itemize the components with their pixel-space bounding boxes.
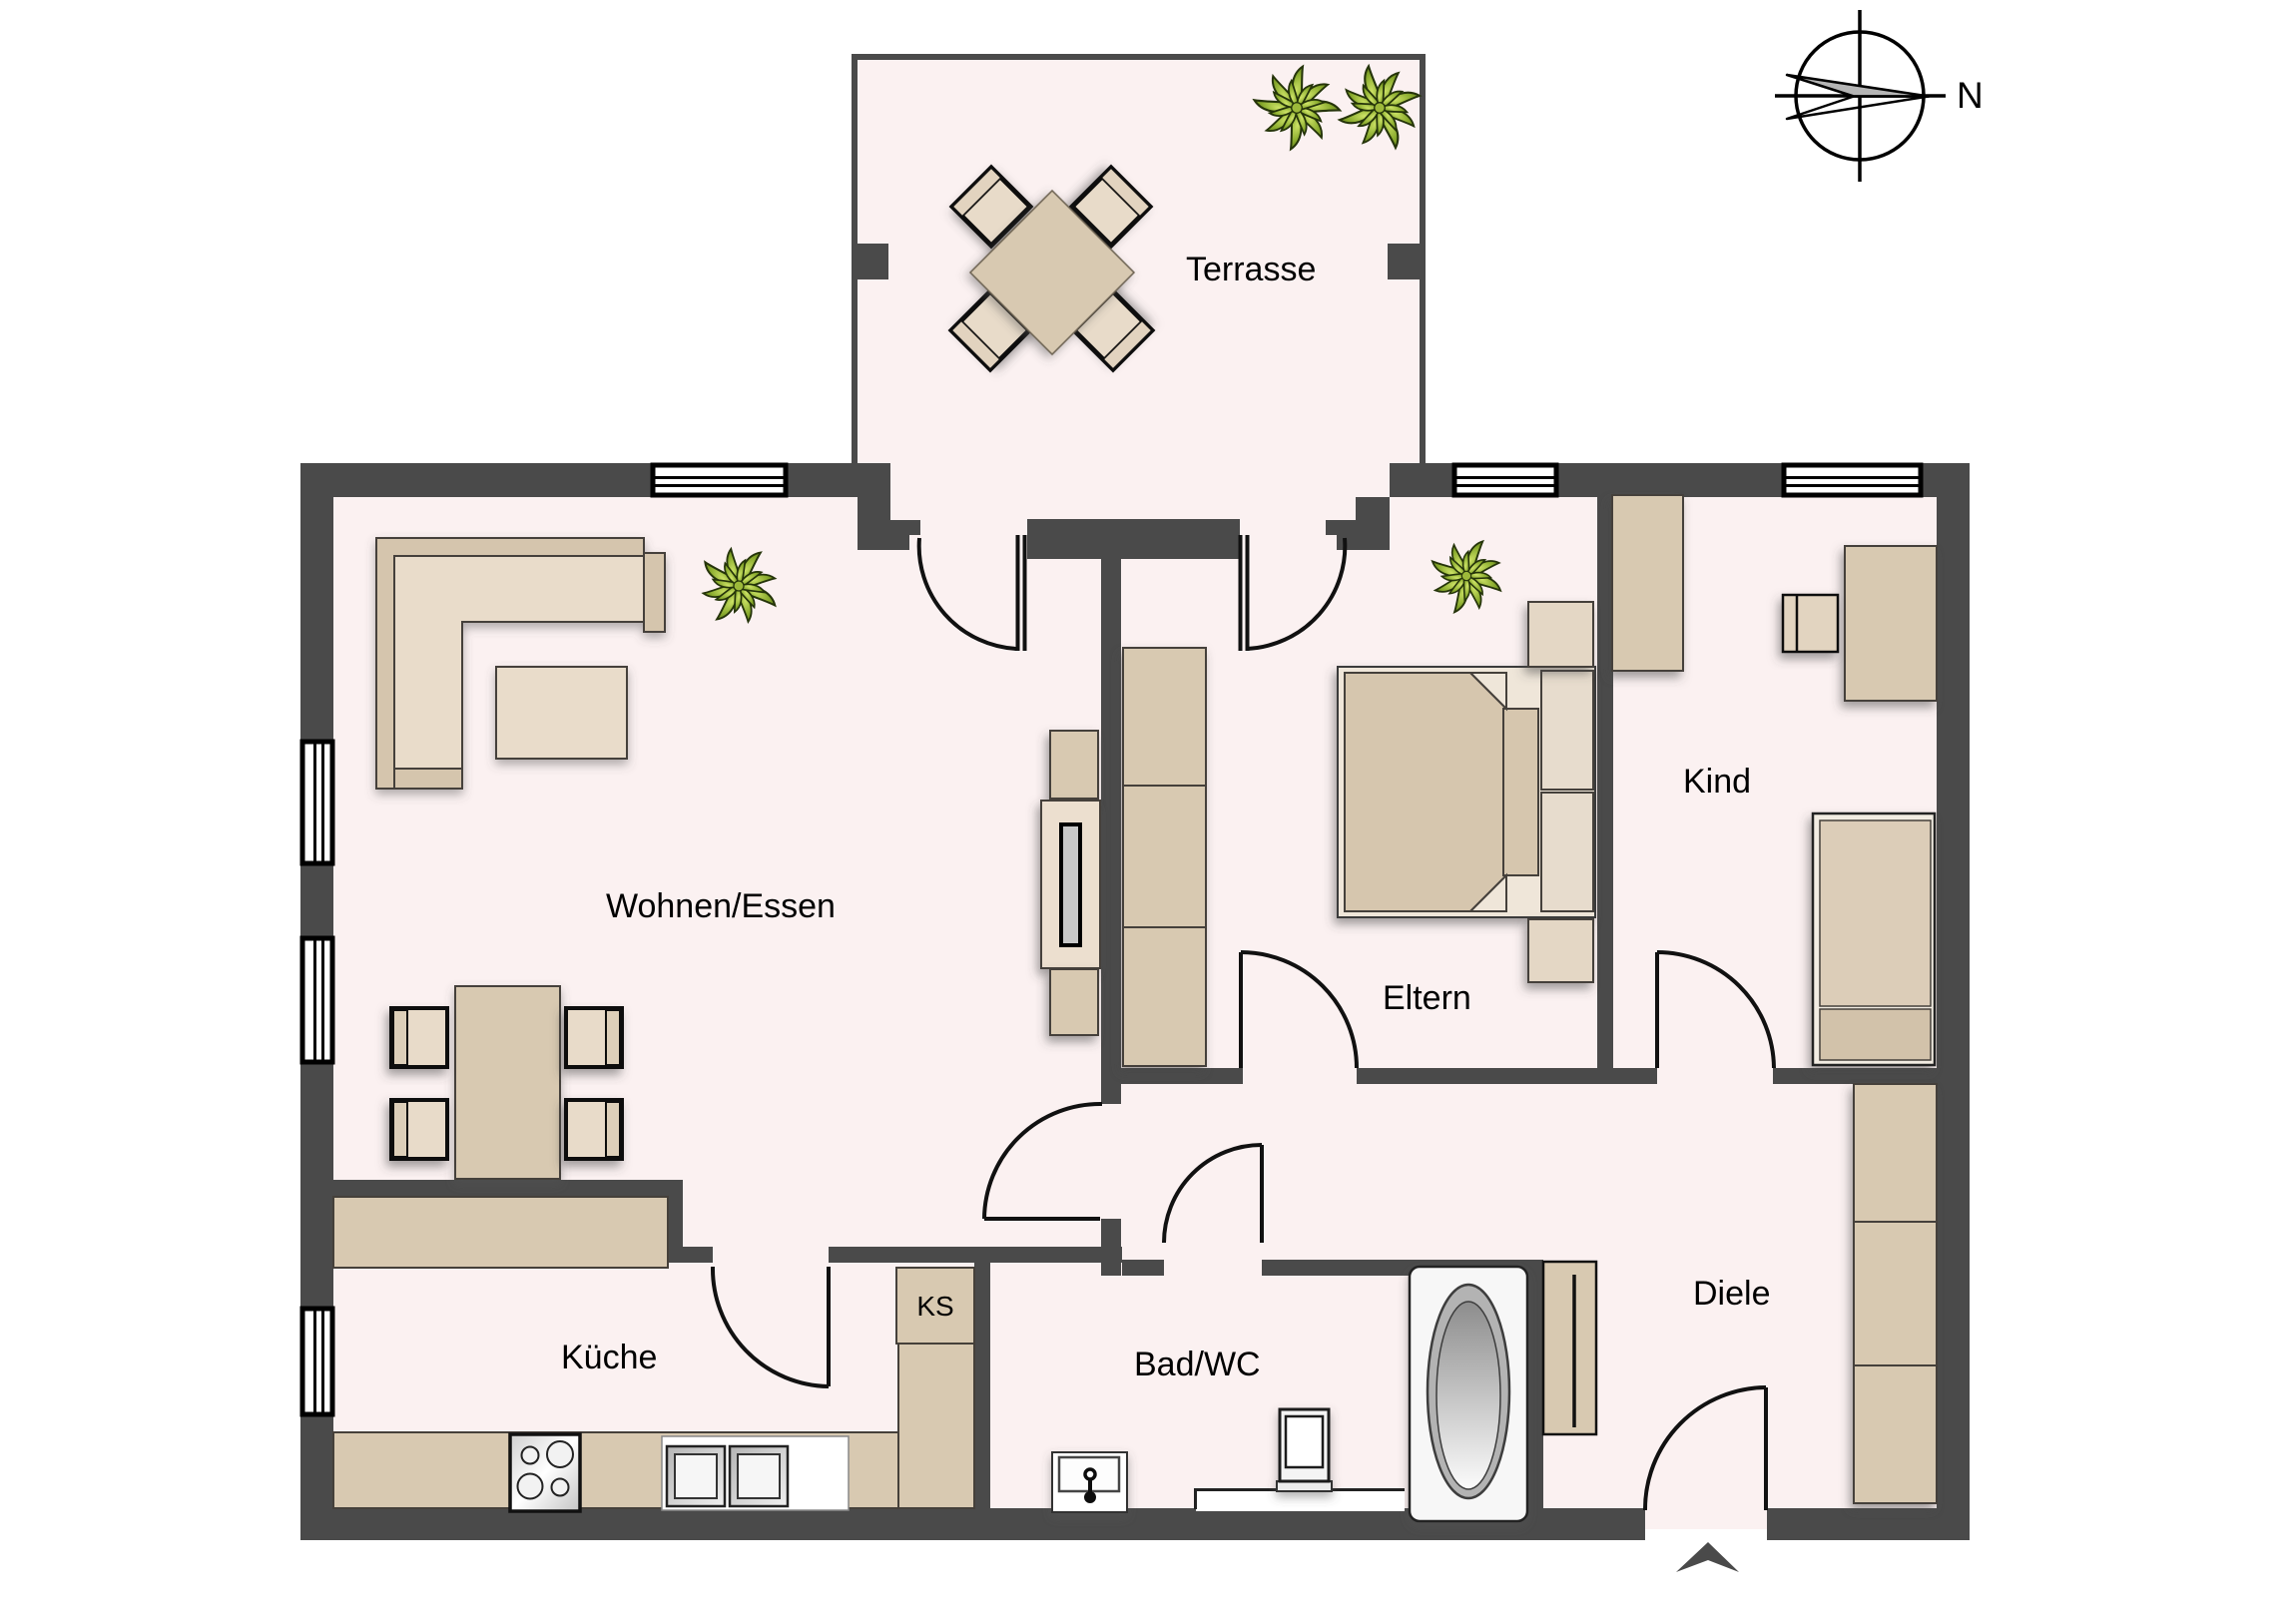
svg-text:Kind: Kind	[1683, 763, 1751, 801]
svg-text:Küche: Küche	[561, 1339, 657, 1376]
svg-text:N: N	[1957, 75, 1984, 116]
svg-text:Diele: Diele	[1693, 1275, 1770, 1313]
svg-text:Terrasse: Terrasse	[1186, 251, 1316, 288]
svg-text:Eltern: Eltern	[1383, 979, 1471, 1017]
svg-text:KS: KS	[916, 1291, 953, 1322]
svg-text:Wohnen/Essen: Wohnen/Essen	[606, 887, 836, 925]
svg-text:Bad/WC: Bad/WC	[1134, 1346, 1261, 1383]
